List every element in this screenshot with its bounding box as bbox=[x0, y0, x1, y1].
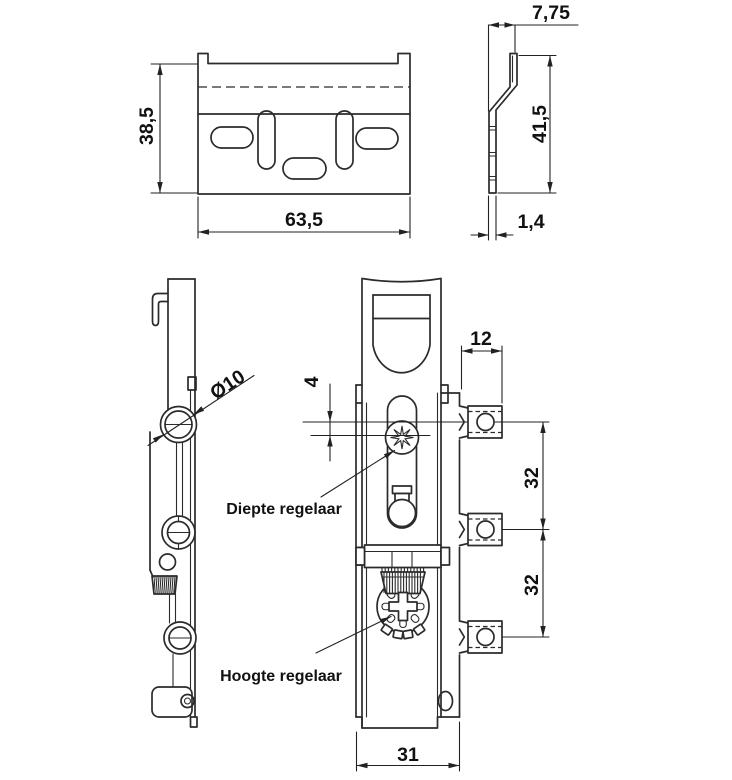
gear-serration-side bbox=[152, 576, 177, 594]
leader-line bbox=[316, 617, 391, 654]
tongue-outline bbox=[373, 295, 430, 373]
clamp-bar-side-tab-left bbox=[356, 548, 365, 566]
dim-arrow bbox=[547, 56, 552, 67]
plate-side-view: 7,75 41,5 1,4 bbox=[471, 2, 578, 240]
tab-hole bbox=[477, 414, 494, 431]
profile-thickness-dim-text: 1,4 bbox=[517, 211, 544, 233]
plate-width-dim-text: 63,5 bbox=[285, 209, 323, 231]
dim-arrow bbox=[496, 232, 507, 237]
tab-width-dim-text: 12 bbox=[470, 328, 492, 350]
profile-offset-dim-text: 7,75 bbox=[532, 2, 570, 24]
mounting-tabs: 12 32 32 bbox=[441, 328, 549, 717]
dim-arrow bbox=[540, 530, 545, 541]
mounting-tab bbox=[468, 514, 502, 546]
clamp-bolt-cap bbox=[393, 486, 412, 494]
profile-height-dim-text: 41,5 bbox=[529, 105, 551, 143]
body-bottom-profile bbox=[356, 717, 460, 728]
arm-bottom-tab bbox=[152, 687, 192, 717]
tab-hole bbox=[477, 629, 494, 646]
plate-outline bbox=[198, 54, 410, 195]
body-top-edge bbox=[362, 279, 441, 282]
dim-arrow bbox=[489, 22, 500, 27]
arm-front-view: 4 bbox=[301, 279, 468, 772]
clamp-bar-side-tab-right bbox=[441, 548, 450, 566]
hole-diameter-dim-text: Ø10 bbox=[206, 366, 249, 405]
depth-travel-dim-text: 4 bbox=[301, 376, 323, 387]
clamp-bar bbox=[365, 545, 442, 568]
flange-right-edge bbox=[460, 393, 469, 717]
body-width-dim-text: 31 bbox=[397, 744, 419, 766]
tab-spacing-upper-dim-text: 32 bbox=[521, 467, 543, 489]
dim-arrow bbox=[449, 763, 460, 768]
dim-arrow bbox=[399, 229, 410, 234]
dim-arrow bbox=[357, 763, 368, 768]
right-side-tab-upper bbox=[441, 385, 448, 403]
dim-arrow bbox=[547, 182, 552, 193]
dim-arrow bbox=[157, 64, 162, 75]
arm-hook bbox=[153, 294, 169, 326]
dim-arrow bbox=[327, 411, 332, 422]
cam-knob-side bbox=[160, 554, 176, 570]
arm-bottom-foot bbox=[191, 717, 198, 727]
plate-slot-vertical-right bbox=[336, 111, 353, 169]
dim-arrow bbox=[491, 348, 502, 353]
dim-arrow bbox=[540, 626, 545, 637]
dim-arrow bbox=[198, 229, 209, 234]
dim-arrow bbox=[505, 22, 516, 27]
dim-arrow bbox=[157, 182, 162, 193]
plate-slot-horizontal-left bbox=[211, 127, 253, 148]
technical-drawing-page: 38,5 63,5 7,75 41,5 bbox=[0, 0, 732, 780]
plate-slot-horizontal-right bbox=[356, 128, 398, 149]
plate-slot-horizontal-bottom bbox=[283, 158, 326, 179]
dim-arrow bbox=[478, 232, 489, 237]
depth-adjuster-label: Diepte regelaar bbox=[226, 501, 342, 518]
hinge-bracket-drawing: 38,5 63,5 7,75 41,5 bbox=[0, 0, 732, 780]
tab-hole bbox=[477, 521, 494, 538]
mounting-tab bbox=[468, 621, 502, 653]
leader-line bbox=[321, 451, 395, 498]
worm-cylinder bbox=[381, 572, 425, 594]
dim-arrow bbox=[540, 422, 545, 433]
height-adjuster-label: Hoogte regelaar bbox=[220, 668, 342, 685]
plate-slot-vertical-left bbox=[258, 111, 275, 169]
plate-height-dim-text: 38,5 bbox=[136, 107, 158, 145]
plate-front-view: 38,5 63,5 bbox=[136, 54, 410, 239]
dim-arrow bbox=[540, 519, 545, 530]
clamp-bolt-head bbox=[389, 500, 416, 527]
tab-spacing-lower-dim-text: 32 bbox=[521, 574, 543, 596]
dim-arrow bbox=[327, 436, 332, 447]
